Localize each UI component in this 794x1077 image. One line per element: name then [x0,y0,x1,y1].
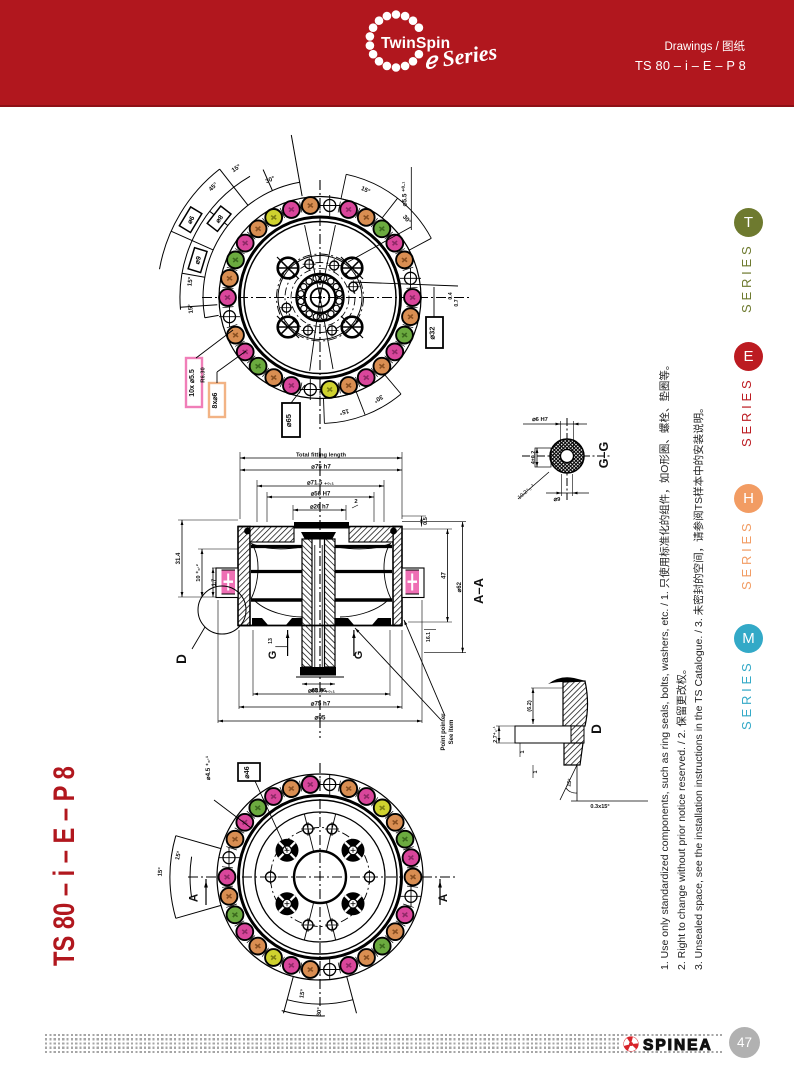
svg-text:45°: 45° [208,181,220,193]
svg-text:⌀6 H7: ⌀6 H7 [532,417,548,423]
svg-text:10.2⁺₀·²: 10.2⁺₀·² [516,483,536,501]
svg-text:⌀4.5 ⁺₀·¹: ⌀4.5 ⁺₀·¹ [205,756,212,780]
svg-text:15°: 15° [566,778,573,787]
svg-text:2.7⁺₀·¹: 2.7⁺₀·¹ [493,726,499,743]
svg-text:0.7: 0.7 [454,299,460,306]
svg-text:15°: 15° [231,163,243,174]
svg-text:⌀95: ⌀95 [315,714,326,721]
svg-text:R6.30: R6.30 [201,367,207,382]
svg-text:15°: 15° [158,867,165,877]
svg-text:(6.2): (6.2) [527,700,533,712]
svg-text:⌀26 h7: ⌀26 h7 [310,504,330,510]
svg-text:30°: 30° [372,393,384,404]
svg-text:A–A: A–A [471,577,486,604]
svg-text:4±0.2: 4±0.2 [531,451,537,464]
svg-text:⌀56 H7: ⌀56 H7 [311,491,331,497]
svg-text:⌀46: ⌀46 [242,766,251,778]
svg-text:SPINEA: SPINEA [643,1037,713,1054]
svg-text:15°: 15° [299,988,307,999]
svg-text:A: A [189,894,201,902]
svg-text:47: 47 [442,572,448,579]
svg-text:2: 2 [354,499,357,505]
svg-text:⌀9: ⌀9 [554,497,561,503]
svg-text:D: D [589,724,604,734]
svg-text:15°: 15° [360,185,372,195]
svg-text:1.7: 1.7 [212,579,218,587]
svg-text:⌀71.5 ₊₀.₁: ⌀71.5 ₊₀.₁ [307,480,334,486]
svg-text:⌀63.9 ₊₀.₁: ⌀63.9 ₊₀.₁ [308,688,335,694]
svg-text:G: G [267,651,279,660]
svg-text:15°: 15° [338,407,349,416]
svg-text:⌀75 h7: ⌀75 h7 [311,700,331,707]
svg-text:13: 13 [268,638,274,644]
svg-text:⌀32: ⌀32 [428,327,437,340]
svg-text:15°: 15° [186,276,194,287]
svg-text:0.3x15°: 0.3x15° [590,804,609,810]
svg-text:1: 1 [533,771,539,774]
svg-text:D: D [174,654,189,664]
svg-text:8x⌀6: 8x⌀6 [212,392,219,408]
svg-text:A: A [438,894,450,902]
svg-text:31.4: 31.4 [176,552,182,564]
svg-text:Point pointer: Point pointer [441,713,447,751]
svg-text:G: G [353,651,365,660]
svg-text:15°: 15° [175,850,183,861]
svg-text:See item: See item [449,720,455,745]
svg-text:Total fitting length: Total fitting length [296,452,347,458]
svg-text:10x ⌀5.5: 10x ⌀5.5 [189,369,196,397]
svg-text:G–G: G–G [597,442,611,468]
svg-text:⌀5.5 ⁺⁰·¹: ⌀5.5 ⁺⁰·¹ [402,182,409,207]
svg-text:0.5: 0.5 [423,517,429,525]
svg-text:15°: 15° [187,303,195,313]
svg-text:⌀62: ⌀62 [457,581,463,592]
svg-text:10 ⁺₀·²: 10 ⁺₀·² [195,564,202,582]
svg-text:16.1: 16.1 [426,632,432,642]
svg-text:30°: 30° [317,1007,324,1017]
svg-text:⌀65: ⌀65 [284,414,293,427]
svg-text:1: 1 [520,751,526,754]
svg-text:0.4: 0.4 [448,292,454,299]
svg-text:⌀75 h7: ⌀75 h7 [311,463,331,470]
